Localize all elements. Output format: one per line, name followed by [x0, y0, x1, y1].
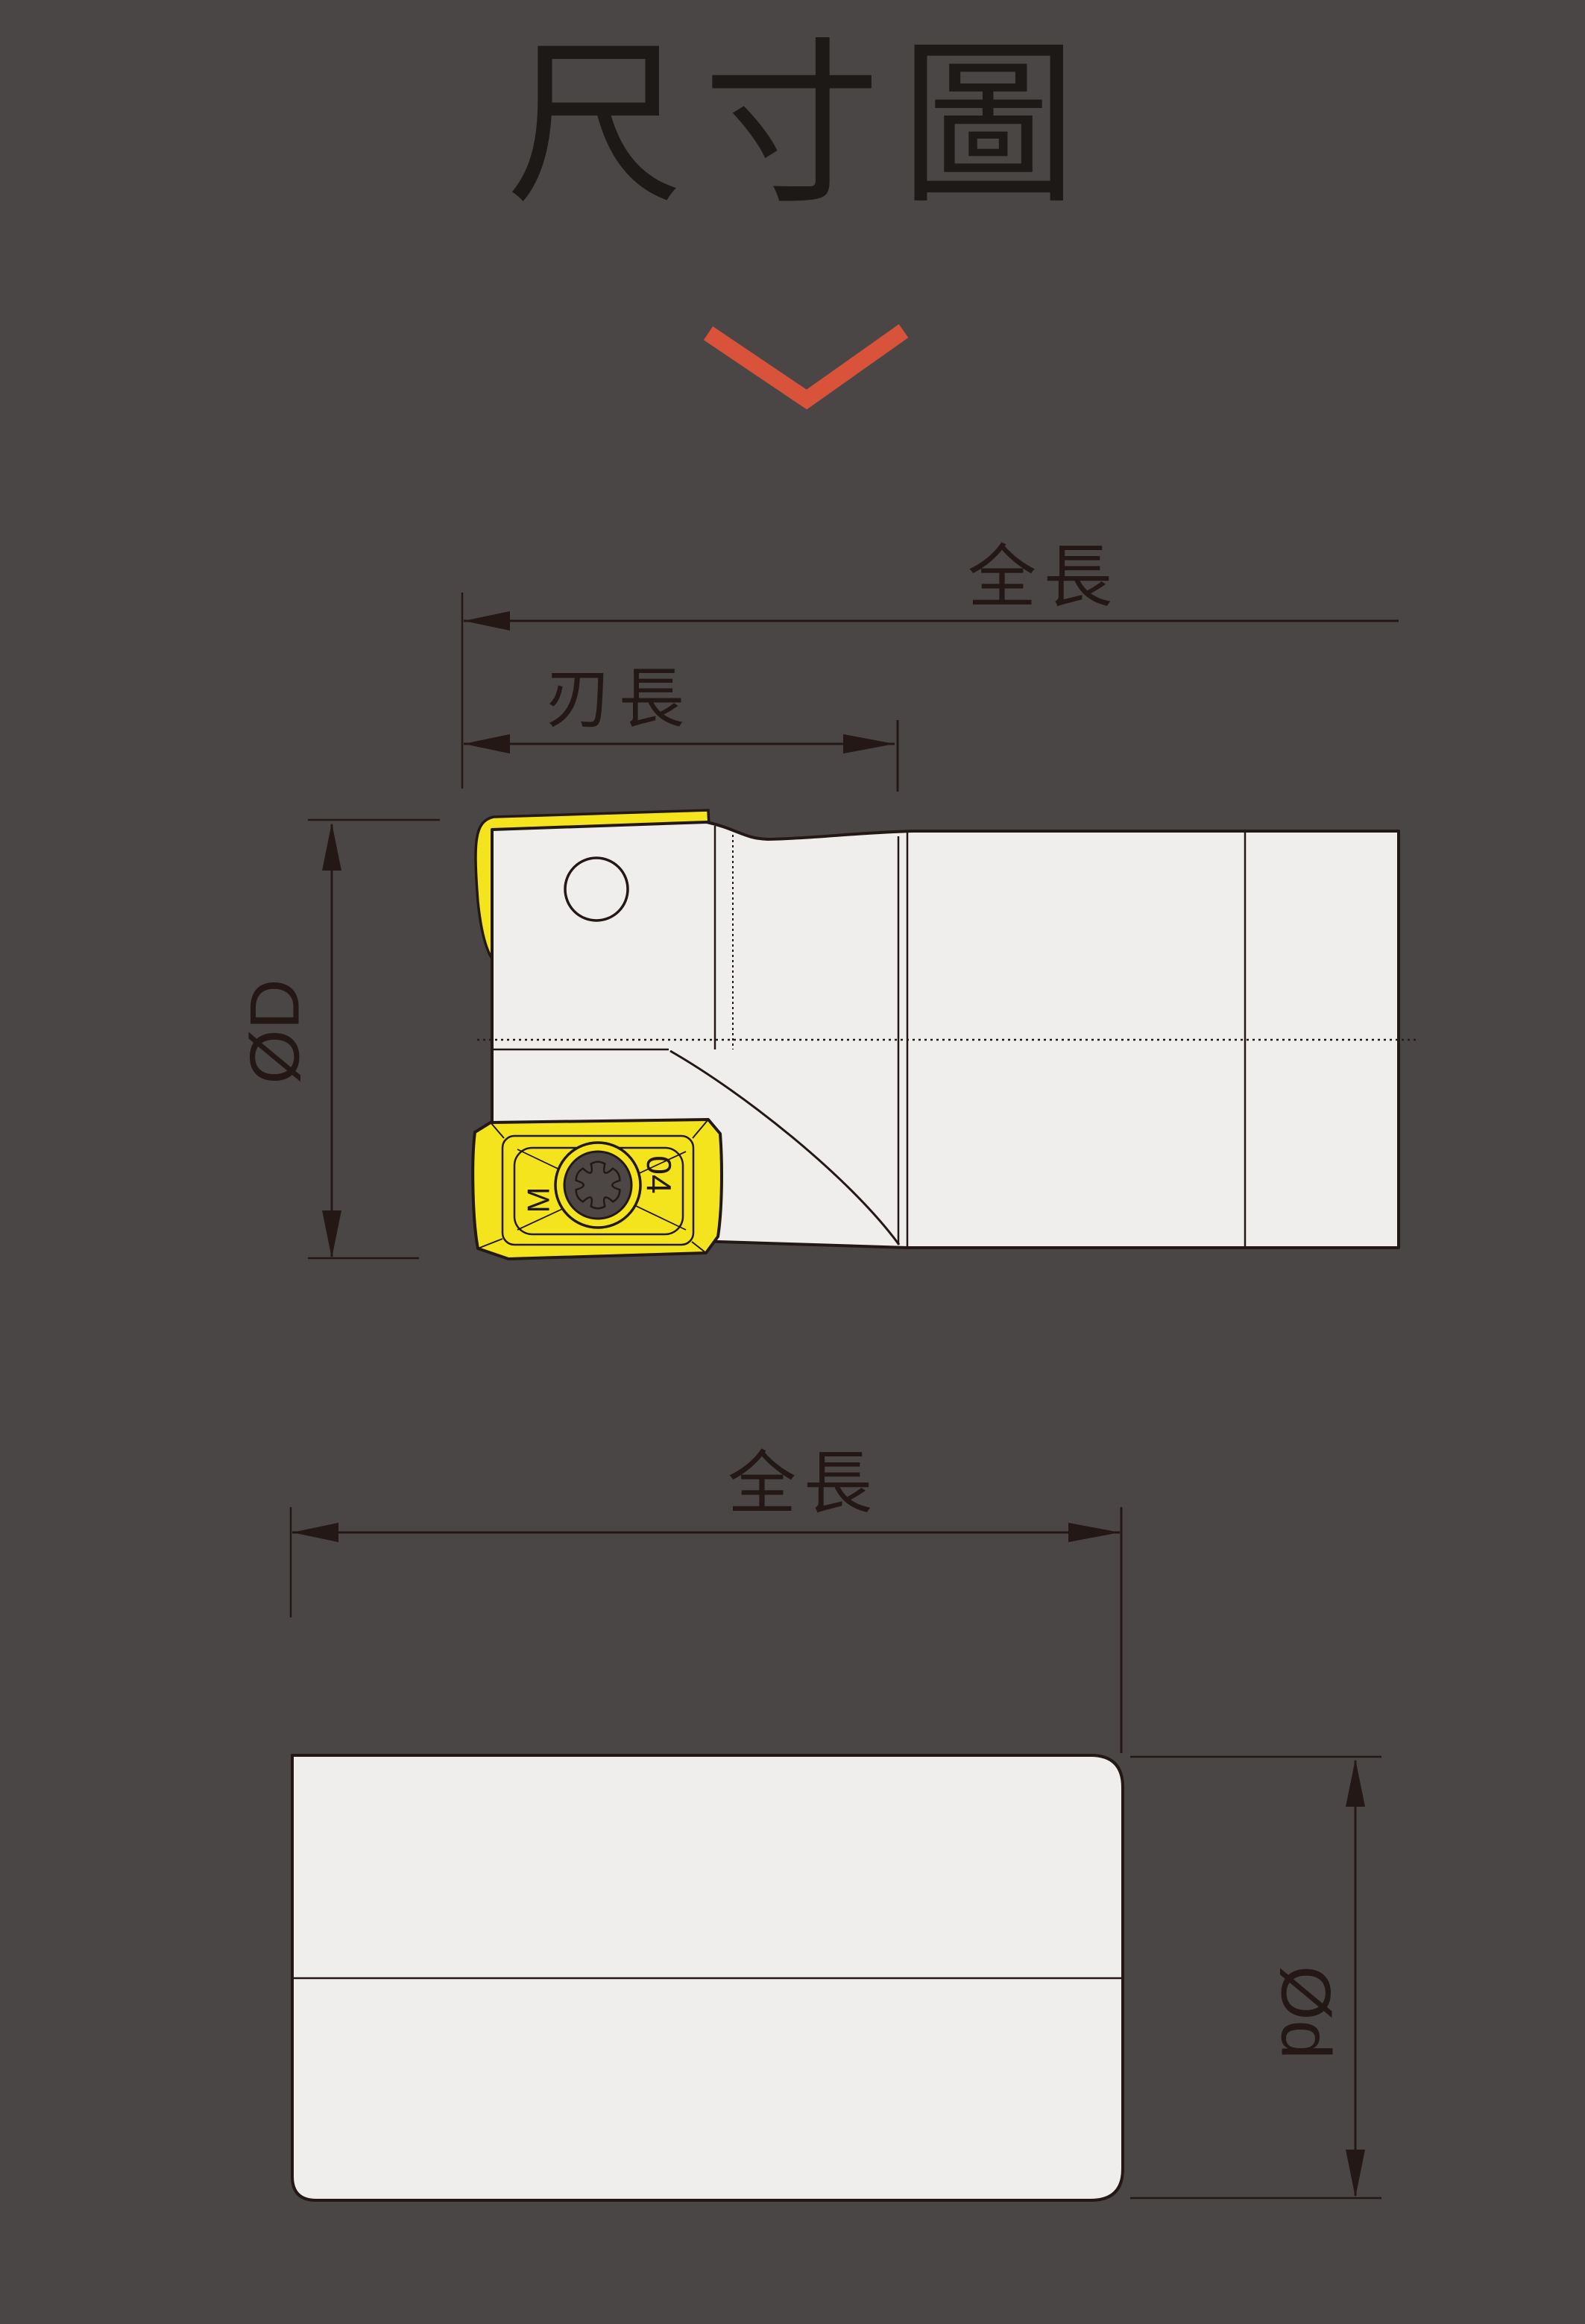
arrow-down-icon	[1346, 2150, 1365, 2197]
cutter-body: M 04	[473, 810, 1418, 1259]
screw-hole	[565, 858, 628, 921]
shank-diameter-label: Ød	[1267, 1965, 1346, 2059]
arrow-right-icon	[1068, 1523, 1120, 1542]
page: 尺寸圖 全長 刃長 ØD	[0, 0, 1585, 2324]
arrow-left-icon	[292, 1523, 338, 1542]
arrow-left-icon	[464, 611, 510, 631]
top-total-length-label: 全長	[968, 540, 1120, 616]
arrow-up-icon	[322, 823, 341, 871]
arrow-down-icon	[322, 1210, 341, 1258]
chevron-down-icon	[708, 331, 904, 400]
arrow-up-icon	[1346, 1759, 1365, 1807]
top-view: 全長 刃長 ØD	[236, 540, 1419, 1259]
arrow-right-icon	[843, 734, 895, 754]
front-insert: M 04	[473, 1120, 722, 1259]
arrow-left-icon	[464, 734, 510, 754]
flute-length-label: 刃長	[546, 662, 692, 736]
insert-mark-m: M	[521, 1187, 556, 1213]
side-view: 全長 Ød	[291, 1446, 1381, 2200]
dimension-diagram: 尺寸圖 全長 刃長 ØD	[0, 0, 1585, 2324]
insert-mark-04: 04	[640, 1155, 678, 1193]
page-title: 尺寸圖	[506, 27, 1097, 224]
cutting-diameter-label: ØD	[236, 979, 314, 1084]
side-total-length-label: 全長	[728, 1446, 880, 1522]
